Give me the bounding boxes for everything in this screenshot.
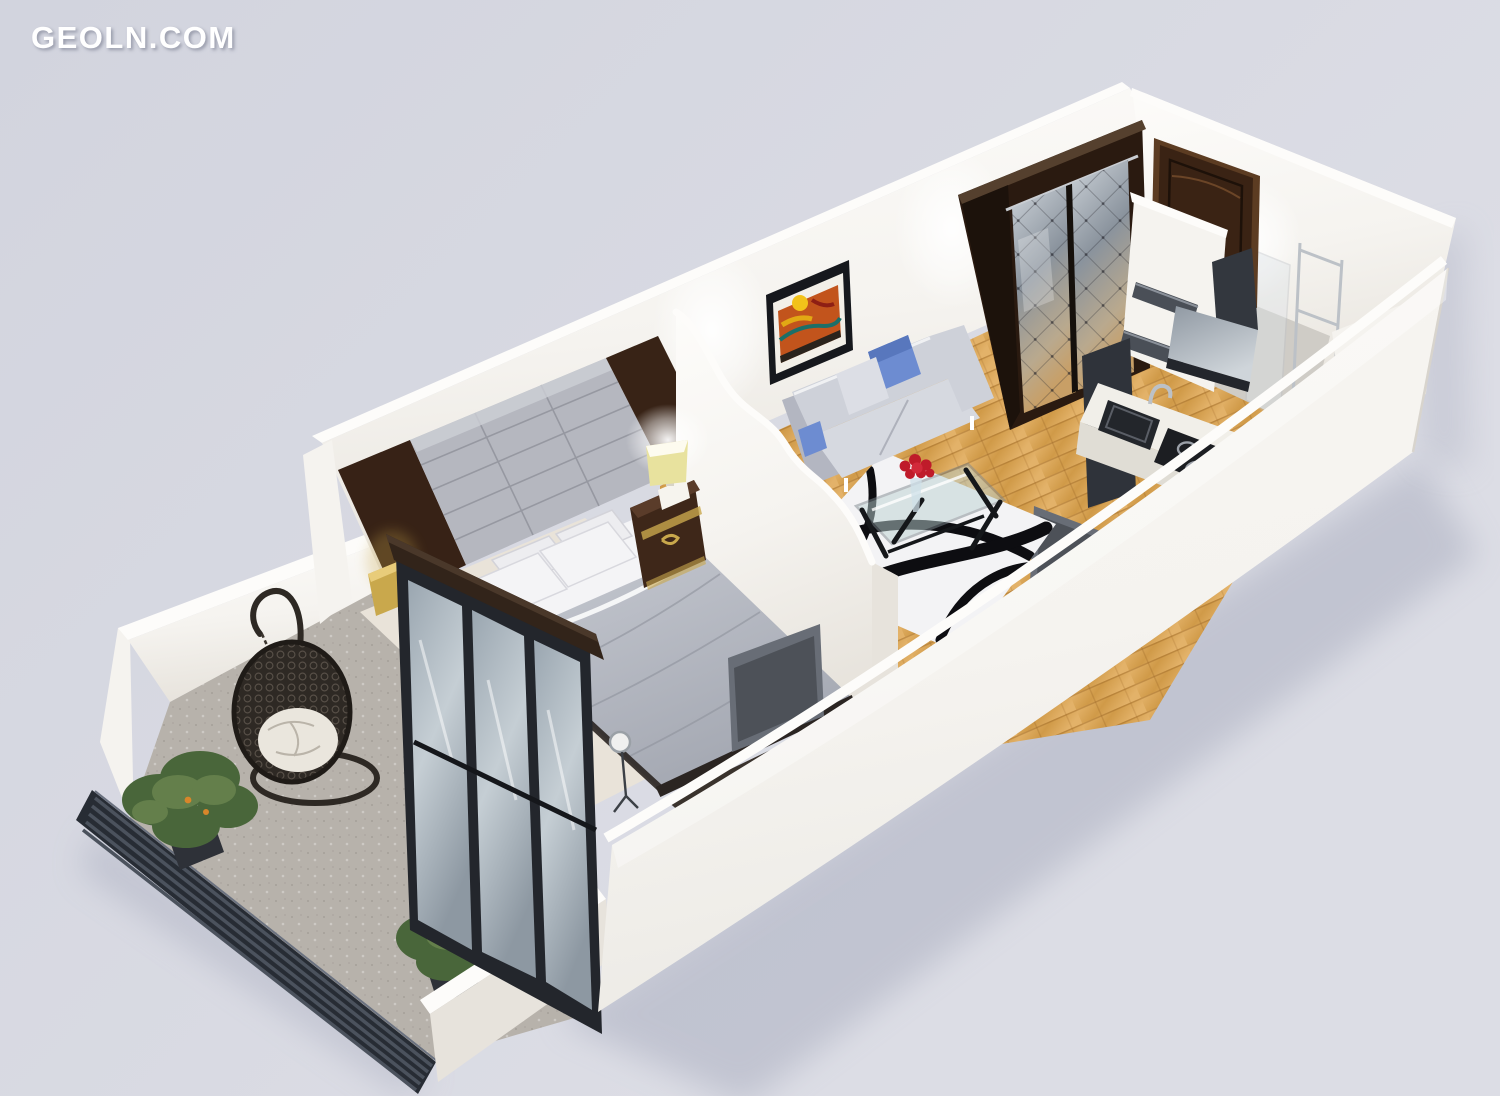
apartment-scene xyxy=(0,0,1500,1096)
floorplan-3d-render: GEOLN.COM xyxy=(0,0,1500,1096)
watermark: GEOLN.COM xyxy=(31,20,236,56)
